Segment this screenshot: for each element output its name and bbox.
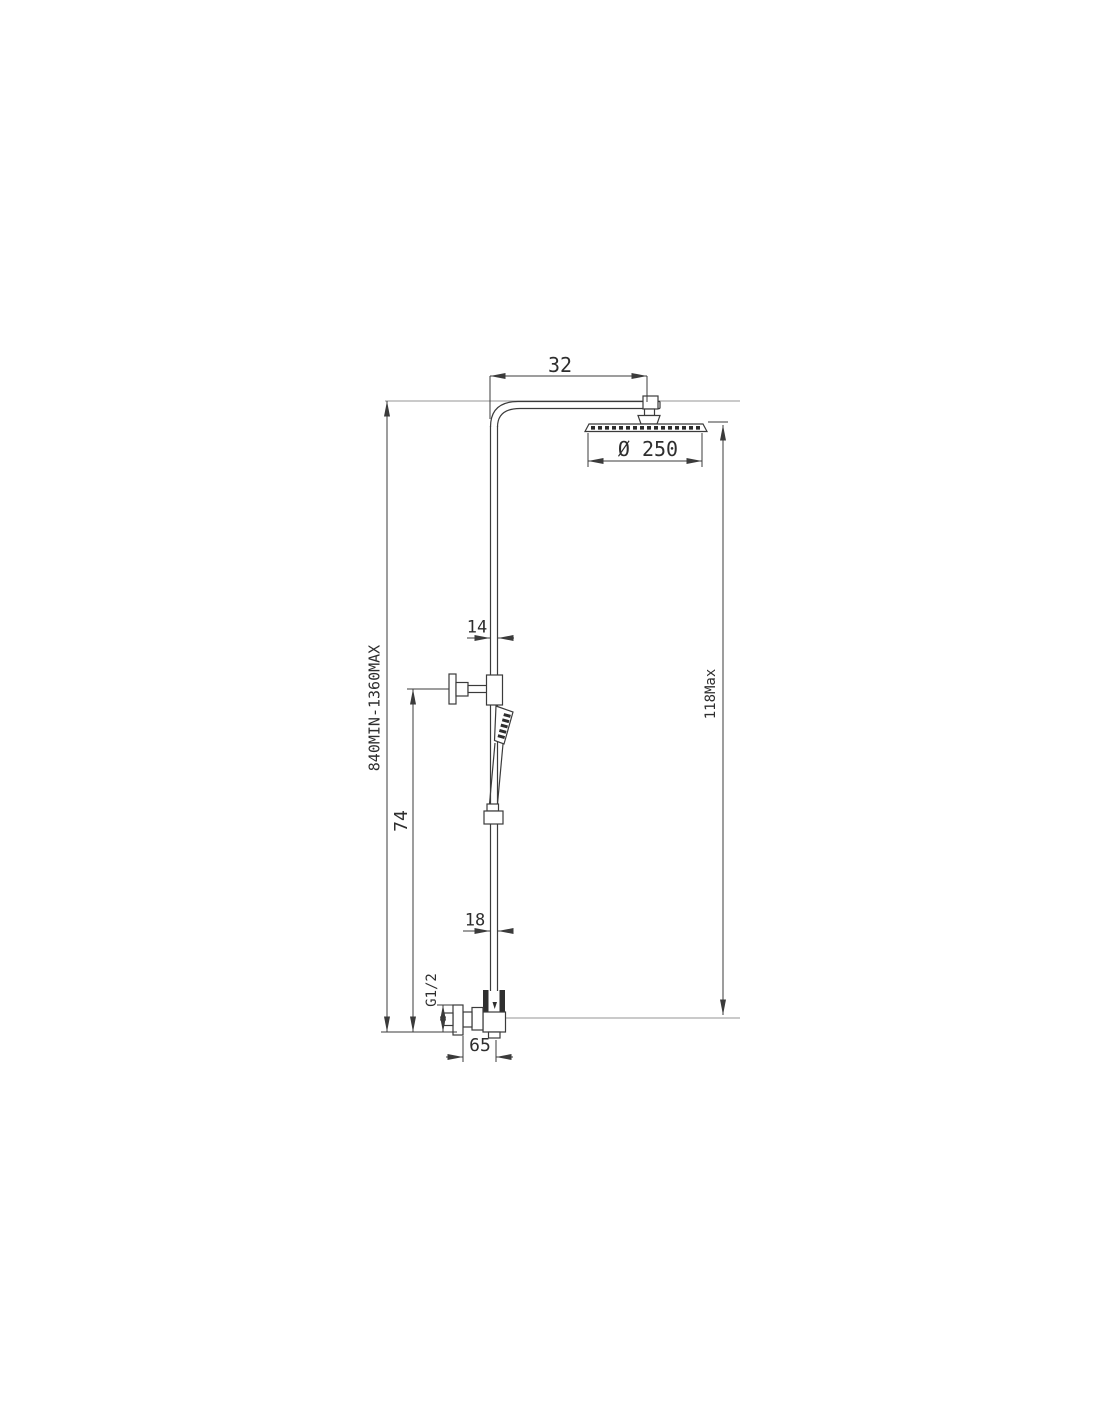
dim-valve-offset-label: 65 (469, 1037, 491, 1055)
dim-overall-height-label: 118Max (704, 669, 718, 720)
dim-inlet-thread-label: G1/2 (425, 973, 439, 1007)
dim-slide-height-label: 74 (393, 810, 411, 832)
mixer-valve (444, 990, 506, 1038)
dim-head-diameter-label: Ø 250 (618, 439, 678, 459)
dim-upper-pipe-label: 14 (467, 620, 487, 637)
dimension-lines (381, 376, 728, 1062)
shower-column-drawing (0, 0, 1100, 1422)
dim-height-range-label: 840MIN-1360MAX (368, 645, 383, 771)
dim-arm-length-label: 32 (548, 355, 572, 375)
slider-lock (484, 811, 503, 824)
technical-drawing-page: 32 Ø 250 14 840MIN-1360MAX 74 118Max 18 … (0, 0, 1100, 1422)
extension-lines-gray (385, 401, 740, 1018)
wall-bracket (449, 674, 503, 705)
dim-lower-pipe-label: 18 (465, 913, 485, 930)
shower-arm (491, 402, 661, 428)
